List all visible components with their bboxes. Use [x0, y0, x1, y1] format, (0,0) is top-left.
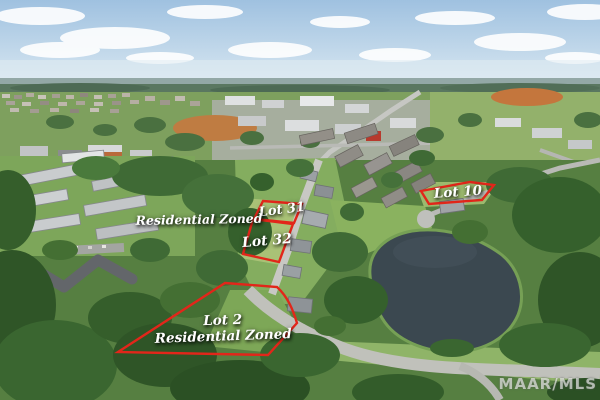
mls-watermark: MAAR/MLS — [499, 375, 597, 393]
lot-2-label: Lot 2 Residential Zoned — [154, 311, 292, 347]
residential-zoned-label: Residential Zoned — [135, 212, 262, 229]
aerial-photo-page: Lot 31 Lot 32 Lot 10 Residential Zoned L… — [0, 0, 600, 400]
